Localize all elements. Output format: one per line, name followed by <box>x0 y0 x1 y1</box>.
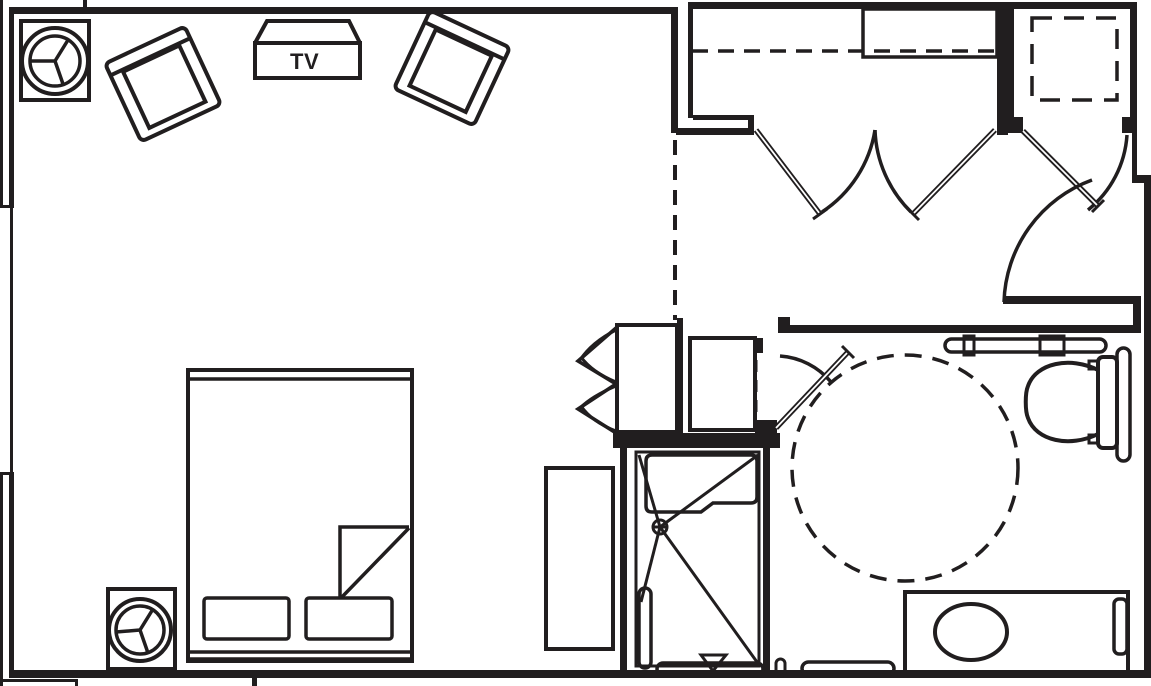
floor-plan-page: TV <box>0 0 1151 686</box>
lounge-chair-left <box>105 26 221 141</box>
toilet-tank <box>1098 357 1117 448</box>
tv-label: TV <box>290 49 319 74</box>
bed-pillow-right <box>306 598 392 639</box>
bathroom-top-wall <box>779 325 1137 333</box>
left-wall-upper <box>9 7 14 208</box>
left-window-line <box>10 208 13 472</box>
bathroom-fixtures <box>776 336 1130 676</box>
bed-pillow-left <box>204 598 289 639</box>
top-wall-stub <box>83 0 87 8</box>
closet-floor-edge <box>693 115 754 120</box>
chair1-frame <box>105 26 221 141</box>
bathroom-door-jamb-top <box>778 317 790 333</box>
toilet-hinge-right <box>1089 435 1098 443</box>
entry-closet-area <box>578 325 755 433</box>
shower-right-wall <box>763 448 770 670</box>
storage-room-area <box>1004 131 1127 302</box>
closet-door-arc-right <box>875 130 911 212</box>
shower-bench <box>646 455 757 512</box>
storage-door-jamb-left <box>1008 117 1023 133</box>
bifold-door-lower-arc2 <box>581 406 616 431</box>
closet-door-leaf-left-core <box>756 130 820 214</box>
bottom-wall-stub <box>252 678 257 686</box>
toilet-hinge-left <box>1089 361 1098 369</box>
bottom-left-thin-line <box>0 679 77 682</box>
accessible-turning-circle <box>792 355 1018 581</box>
bed-blanket-fold <box>340 527 409 599</box>
left-wall-lower <box>9 472 14 678</box>
right-wall-lower <box>1144 177 1151 678</box>
right-wall-upper <box>1130 2 1137 117</box>
storage-left-wall <box>1008 2 1014 117</box>
tv-credenza-top-face <box>255 21 360 43</box>
shower-slope-line-br <box>660 527 757 662</box>
divider-wall-solid <box>671 7 678 133</box>
bottom-left-jog <box>75 679 78 686</box>
floor-plan-drawing: TV <box>0 0 1151 686</box>
dresser <box>546 468 613 649</box>
bathroom-door-jamb-bottom <box>755 420 777 433</box>
closet-front-band <box>676 128 754 135</box>
entry-cabinet <box>690 338 755 430</box>
closet-door-leaf-right-core <box>913 130 995 214</box>
toilet-bowl <box>1026 363 1098 441</box>
vestibule-bottom-wall <box>613 433 780 448</box>
shower-slope-line-tl <box>639 455 660 527</box>
walls <box>0 0 1151 686</box>
lounge-chair-right <box>394 10 510 125</box>
bathroom-door-leaf-core <box>776 352 848 428</box>
roll-in-shower <box>636 452 763 675</box>
toilet-rear-grab-bar <box>945 339 1106 352</box>
storage-door-jamb-right <box>1122 117 1137 133</box>
vanity-sink <box>935 604 1007 660</box>
bed <box>187 370 412 661</box>
closet-door-jamb-left <box>748 115 754 128</box>
bifold-door-upper-arc2 <box>581 357 616 382</box>
shower-pan <box>636 452 759 666</box>
corridor-bottom-wall <box>1003 296 1141 304</box>
tv-credenza: TV <box>255 21 360 78</box>
left-wall-cap-upper <box>0 205 14 208</box>
outer-wall-left-thin-lower <box>0 472 3 686</box>
outer-wall-left-thin-upper <box>0 0 3 208</box>
bedroom-shower-wall <box>620 443 627 670</box>
storage-dashed-shelf-square <box>1032 18 1117 100</box>
vanity-towel-bar <box>1114 599 1127 654</box>
entry-closet-box <box>617 325 677 432</box>
bed-outline <box>188 370 412 661</box>
shower-slope-line-tr <box>660 455 758 527</box>
vanity-counter <box>905 592 1128 673</box>
closet-door-arc-left <box>822 130 875 212</box>
closet-area <box>756 9 997 220</box>
bedroom-furniture: TV <box>21 10 613 669</box>
closet-left-wall <box>688 9 693 118</box>
right-wall-mid <box>1132 133 1137 177</box>
entry-door-swing-arc <box>1004 180 1092 302</box>
chair2-frame <box>394 10 510 125</box>
bathroom-door <box>776 346 854 428</box>
top-wall-left-section <box>9 7 678 14</box>
